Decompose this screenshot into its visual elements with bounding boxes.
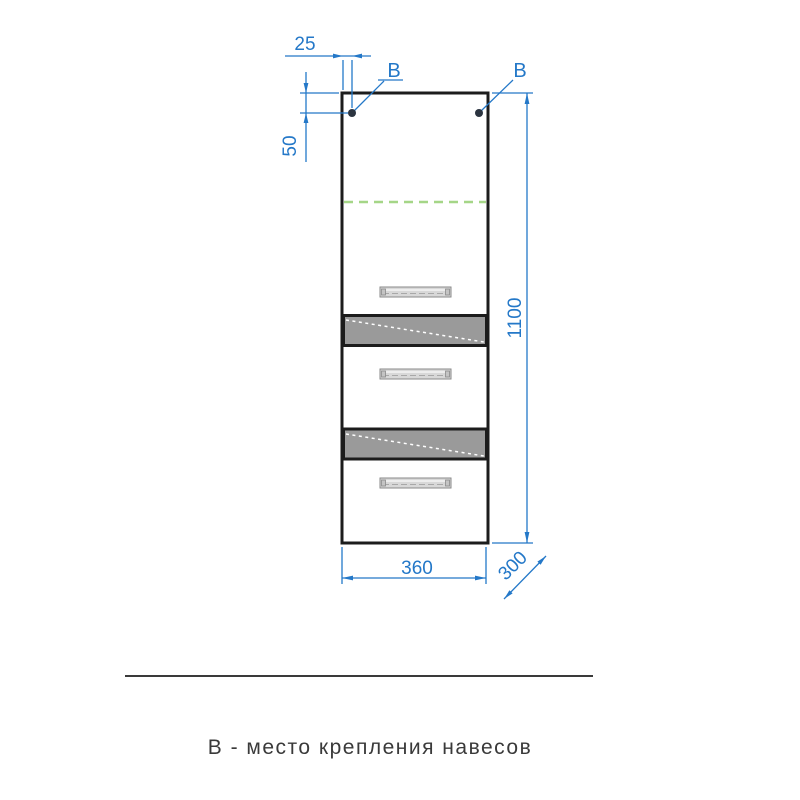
arrowhead [304,113,309,123]
arrowhead [525,532,530,543]
mount-point-dot [348,109,356,117]
drawer-gap-panel-1 [344,316,487,346]
arrowhead [475,576,486,581]
mount-point-label-left: В [387,60,400,82]
dimension-depth: 300 [494,547,546,599]
caption-text: В - место крепления навесов [208,736,533,759]
mount-point-label-right: В [513,60,526,82]
dim-offset-vertical-label: 50 [280,135,301,156]
cabinet-dimension-drawing: 25 50 В В 110 [0,0,800,800]
technical-drawing-page: 25 50 В В 110 [0,0,800,800]
dimension-offset-vertical: 50 [280,72,348,162]
arrowhead [304,83,309,93]
dim-width-label: 360 [401,558,433,579]
arrowhead [525,93,530,104]
dim-height-label: 1100 [505,298,526,339]
dimension-height: 1100 [492,93,533,543]
dimension-width: 360 [342,547,486,584]
mount-point-right: В [475,60,527,117]
arrowhead [352,54,362,59]
drawer-gap-panel-2 [344,429,487,459]
door-handle [380,287,451,297]
mount-point-dot [475,109,483,117]
drawer-handle-1 [380,369,451,379]
arrowhead [333,54,343,59]
dim-offset-horizontal-label: 25 [294,34,315,55]
drawer-handle-2 [380,478,451,488]
dim-depth-label: 300 [494,547,531,584]
arrowhead [342,576,353,581]
